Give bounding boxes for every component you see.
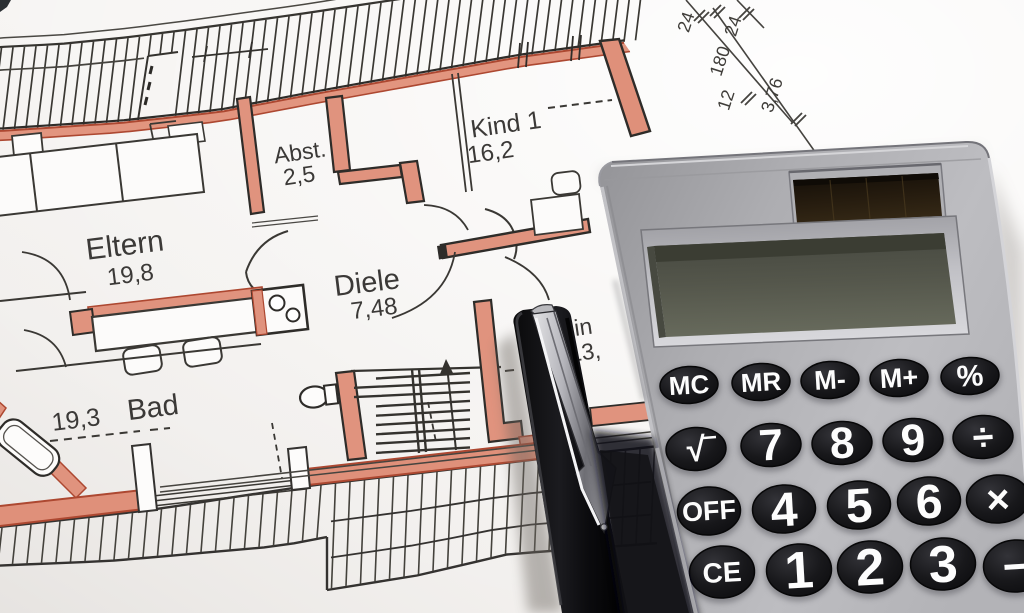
svg-text:M+: M+ (879, 362, 919, 394)
svg-text:CE: CE (702, 556, 743, 589)
svg-text:9: 9 (899, 415, 926, 465)
svg-text:5: 5 (844, 479, 874, 533)
svg-text:19,3: 19,3 (50, 403, 102, 437)
svg-text:4: 4 (769, 483, 799, 537)
svg-text:7,48: 7,48 (349, 293, 399, 325)
svg-text:8: 8 (828, 418, 855, 468)
svg-text:in: in (572, 313, 593, 341)
svg-text:2: 2 (854, 538, 886, 598)
svg-text:3: 3 (927, 535, 959, 595)
svg-text:1: 1 (783, 541, 815, 601)
svg-text:19,8: 19,8 (106, 259, 156, 291)
svg-text:√: √ (686, 430, 707, 469)
svg-text:−: − (1001, 539, 1024, 592)
svg-text:M-: M- (813, 364, 846, 396)
svg-text:2,5: 2,5 (281, 160, 316, 190)
svg-text:Bad: Bad (125, 389, 180, 427)
svg-text:MR: MR (740, 366, 782, 398)
svg-text:OFF: OFF (681, 494, 737, 527)
svg-text:MC: MC (668, 369, 710, 401)
svg-text:÷: ÷ (971, 416, 994, 459)
svg-text:6: 6 (914, 475, 944, 529)
svg-text:7: 7 (757, 420, 784, 470)
svg-text:×: × (985, 477, 1011, 522)
svg-text:%: % (956, 359, 985, 393)
